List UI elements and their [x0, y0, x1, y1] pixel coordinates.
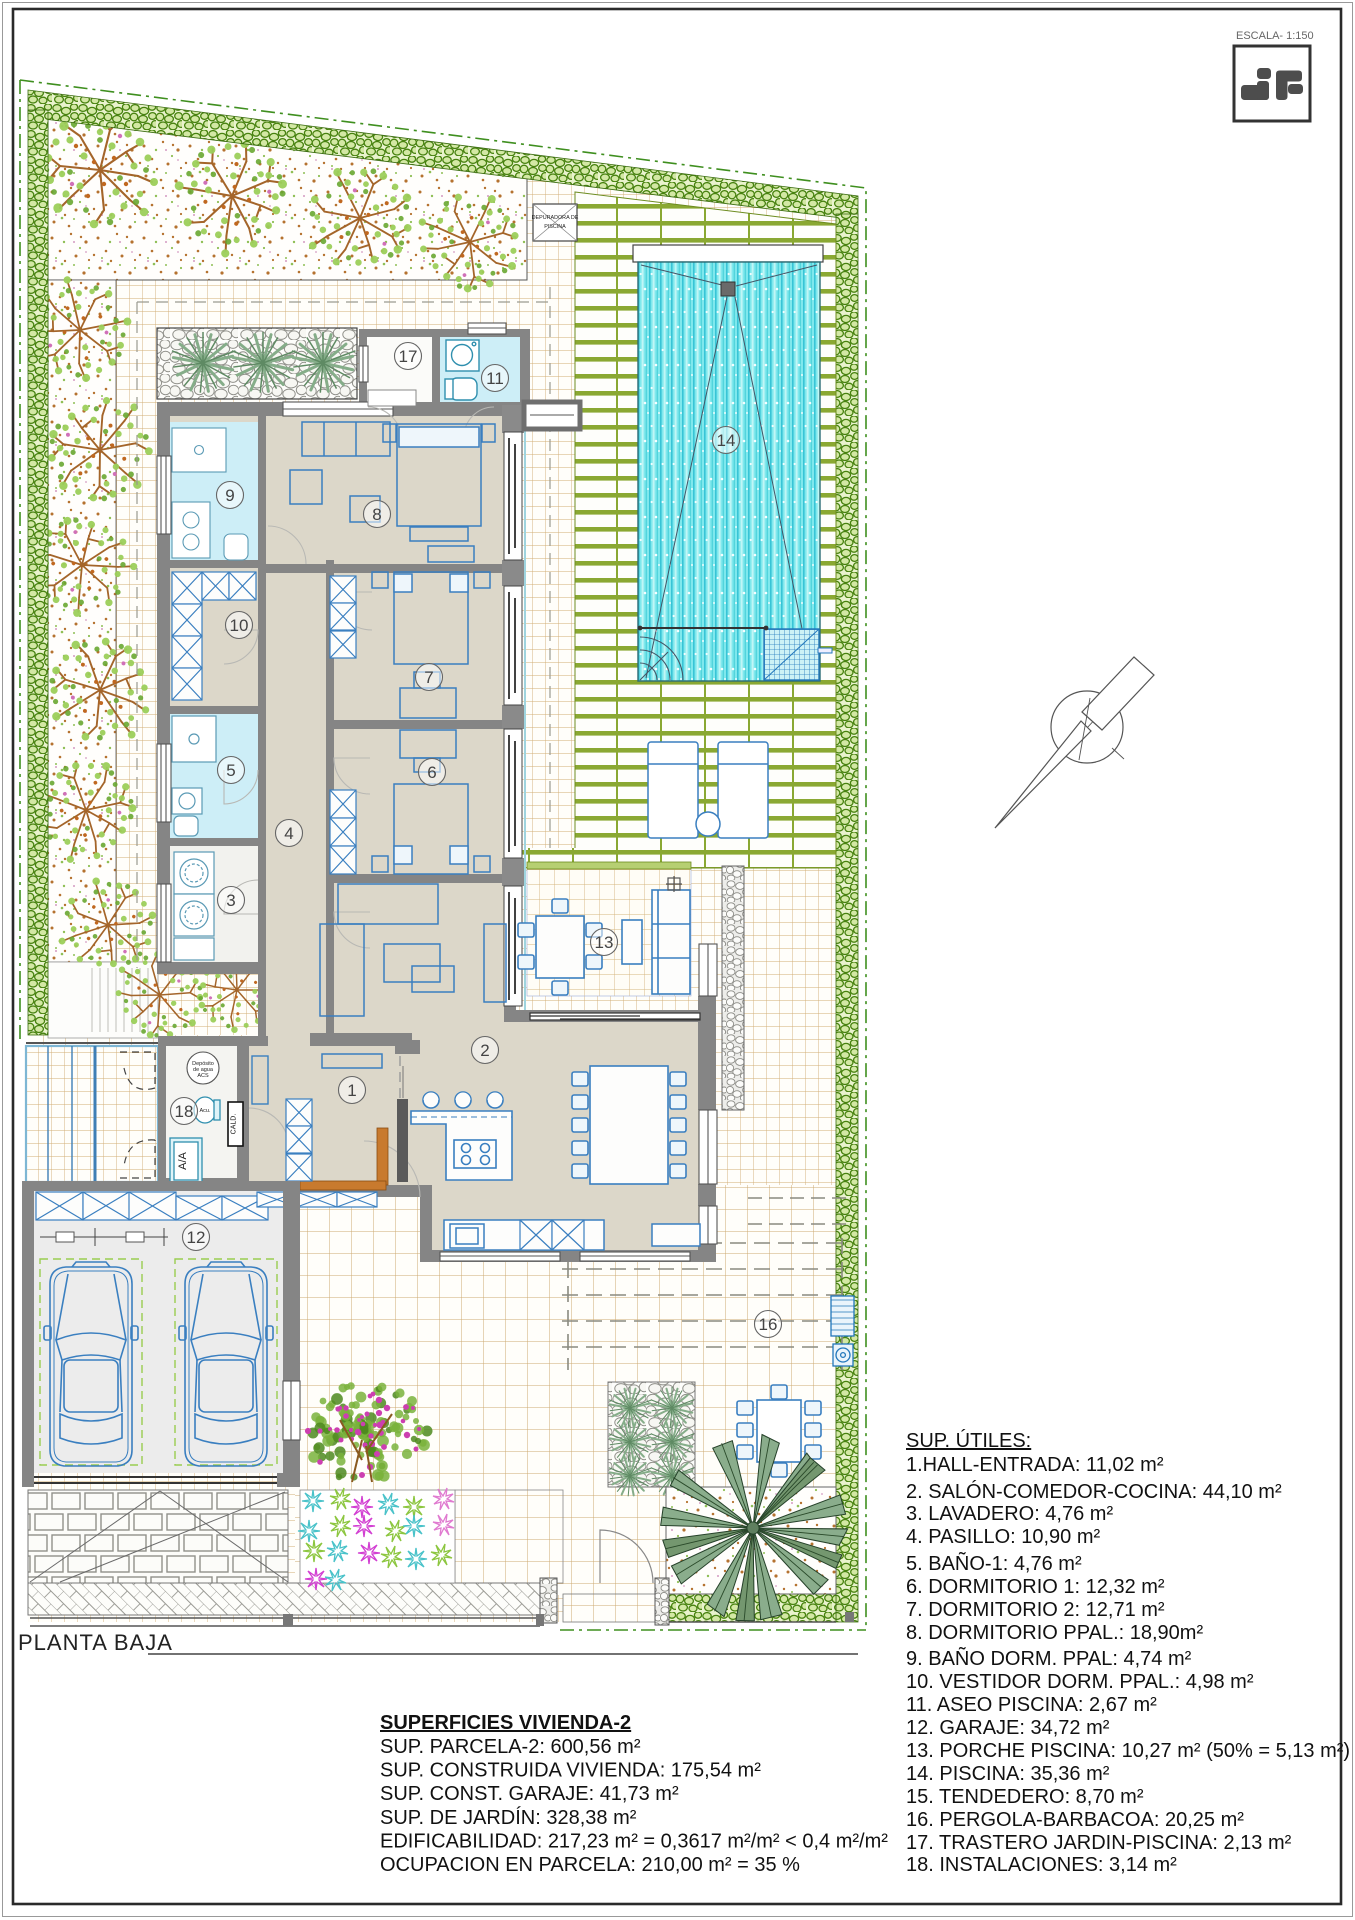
- svg-text:PISCINA: PISCINA: [544, 224, 566, 230]
- svg-text:17: 17: [399, 347, 418, 366]
- svg-text:4: 4: [284, 824, 293, 843]
- svg-text:4. PASILLO: 10,90 m²: 4. PASILLO: 10,90 m²: [906, 1526, 1101, 1548]
- svg-text:12: 12: [187, 1228, 206, 1247]
- svg-text:17. TRASTERO JARDIN-PISCINA: 2: 17. TRASTERO JARDIN-PISCINA: 2,13 m²: [906, 1832, 1292, 1854]
- svg-text:ACS: ACS: [197, 1073, 209, 1079]
- svg-text:10: 10: [230, 616, 249, 635]
- svg-text:9. BAÑO DORM. PPAL: 4,74 m²: 9. BAÑO DORM. PPAL: 4,74 m²: [906, 1646, 1192, 1670]
- svg-text:18: 18: [175, 1102, 194, 1121]
- svg-text:8. DORMITORIO PPAL.: 18,90m²: 8. DORMITORIO PPAL.: 18,90m²: [906, 1622, 1203, 1644]
- svg-text:15. TENDEDERO: 8,70 m²: 15. TENDEDERO: 8,70 m²: [906, 1786, 1144, 1808]
- svg-text:3: 3: [226, 891, 235, 910]
- svg-text:1: 1: [347, 1081, 356, 1100]
- svg-text:5: 5: [226, 761, 235, 780]
- svg-text:1.HALL-ENTRADA: 11,02 m²: 1.HALL-ENTRADA: 11,02 m²: [906, 1454, 1164, 1476]
- svg-text:EDIFICABILIDAD: 217,23 m² = 0: EDIFICABILIDAD: 217,23 m² = 0,3617 m²/m²…: [380, 1830, 888, 1852]
- svg-text:10. VESTIDOR DORM. PPAL.: 4,98: 10. VESTIDOR DORM. PPAL.: 4,98 m²: [906, 1671, 1254, 1693]
- svg-text:13: 13: [595, 933, 614, 952]
- svg-text:12. GARAJE: 34,72 m²: 12. GARAJE: 34,72 m²: [906, 1717, 1110, 1739]
- svg-text:7. DORMITORIO 2: 12,71 m²: 7. DORMITORIO 2: 12,71 m²: [906, 1599, 1165, 1621]
- svg-text:SUP. PARCELA-2: 600,56 m²: SUP. PARCELA-2: 600,56 m²: [380, 1736, 641, 1758]
- svg-text:SUP. CONSTRUIDA VIVIENDA: 175,: SUP. CONSTRUIDA VIVIENDA: 175,54 m²: [380, 1760, 761, 1782]
- svg-text:9: 9: [225, 486, 234, 505]
- svg-text:14. PISCINA: 35,36 m²: 14. PISCINA: 35,36 m²: [906, 1763, 1110, 1785]
- svg-text:A/A: A/A: [177, 1151, 189, 1169]
- svg-text:8: 8: [372, 505, 381, 524]
- svg-text:6. DORMITORIO 1: 12,32 m²: 6. DORMITORIO 1: 12,32 m²: [906, 1576, 1165, 1598]
- svg-text:SUPERFICIES VIVIENDA-2: SUPERFICIES VIVIENDA-2: [380, 1712, 631, 1734]
- svg-text:18. INSTALACIONES: 3,14 m²: 18. INSTALACIONES: 3,14 m²: [906, 1854, 1177, 1876]
- svg-text:16: 16: [759, 1315, 778, 1334]
- svg-text:11. ASEO PISCINA: 2,67 m²: 11. ASEO PISCINA: 2,67 m²: [906, 1694, 1157, 1716]
- svg-text:7: 7: [424, 668, 433, 687]
- svg-text:CALD.: CALD.: [231, 1114, 238, 1135]
- svg-text:Acu.: Acu.: [199, 1108, 210, 1114]
- svg-text:2: 2: [480, 1041, 489, 1060]
- svg-text:5. BAÑO-1: 4,76 m²: 5. BAÑO-1: 4,76 m²: [906, 1551, 1082, 1575]
- svg-text:SUP. CONST. GARAJE: 41,73 m²: SUP. CONST. GARAJE: 41,73 m²: [380, 1783, 679, 1805]
- svg-text:2. SALÓN-COMEDOR-COCINA: 44,10: 2. SALÓN-COMEDOR-COCINA: 44,10 m²: [906, 1480, 1282, 1503]
- svg-text:3. LAVADERO: 4,76 m²: 3. LAVADERO: 4,76 m²: [906, 1503, 1113, 1525]
- svg-text:14: 14: [717, 431, 736, 450]
- svg-text:6: 6: [427, 763, 436, 782]
- svg-text:OCUPACION EN PARCELA: 210,00 m: OCUPACION EN PARCELA: 210,00 m² = 35 %: [380, 1854, 800, 1876]
- svg-text:SUP. DE JARDÍN: 328,38 m²: SUP. DE JARDÍN: 328,38 m²: [380, 1806, 637, 1829]
- svg-text:DEPURADORA DE: DEPURADORA DE: [532, 215, 579, 221]
- svg-text:ESCALA- 1:150: ESCALA- 1:150: [1236, 30, 1314, 42]
- svg-text:PLANTA BAJA: PLANTA BAJA: [18, 1630, 173, 1655]
- svg-text:16. PERGOLA-BARBACOA: 20,25 m²: 16. PERGOLA-BARBACOA: 20,25 m²: [906, 1809, 1244, 1831]
- svg-text:11: 11: [486, 369, 504, 388]
- svg-text:13. PORCHE PISCINA: 10,27 m² (: 13. PORCHE PISCINA: 10,27 m² (50% = 5,13…: [906, 1740, 1350, 1762]
- svg-text:SUP. ÚTILES:: SUP. ÚTILES:: [906, 1429, 1031, 1452]
